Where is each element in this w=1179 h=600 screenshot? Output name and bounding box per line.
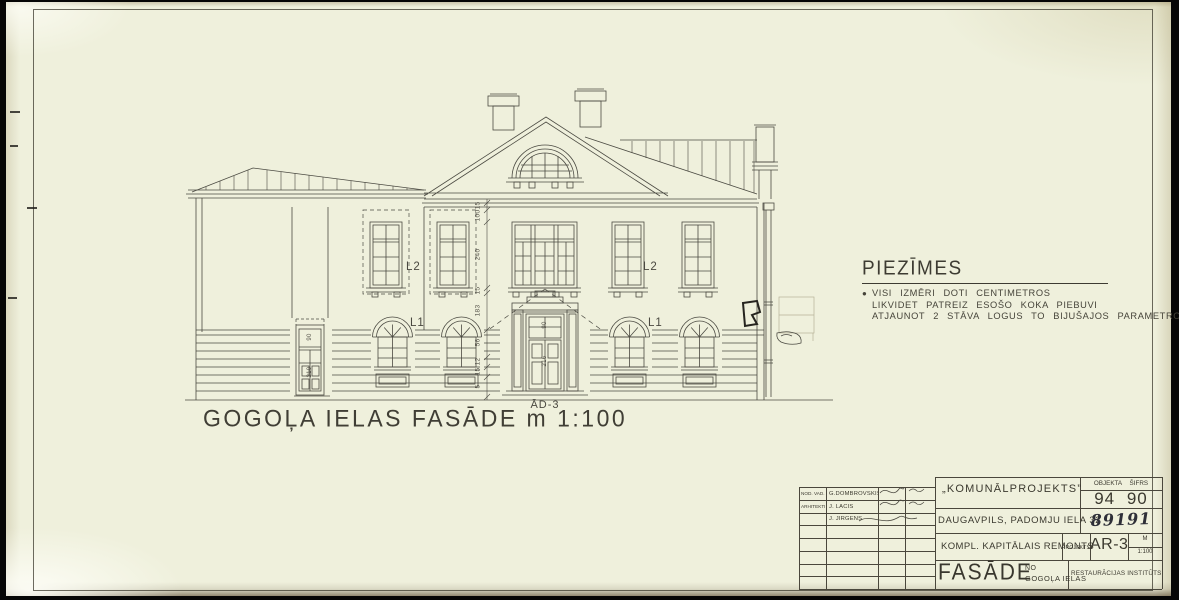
section-callout — [743, 301, 760, 326]
projekts-label: PROJEKTS — [1062, 545, 1090, 551]
scale-value: 1:100 — [1128, 549, 1162, 555]
blueprint-sheet: GOGOĻA IELAS FASĀDE m 1:100 L2 L2 L1 L1 … — [0, 0, 1179, 600]
door-dimension: 216 — [542, 352, 548, 370]
dimension-value: 183 — [475, 302, 482, 320]
institute-name: RESTAURĀCIJAS INSTITŪTS — [1071, 570, 1161, 577]
paper-edge-mark — [27, 207, 37, 209]
triple-window — [508, 222, 581, 297]
sheet-code: AR-3 — [1090, 536, 1128, 554]
notes-underline — [862, 283, 1108, 284]
notes-heading: PIEZĪMES — [862, 257, 1162, 280]
rear-roof-edge — [585, 137, 757, 194]
notes-panel: PIEZĪMES ●VISI IZMĒRI DOTI CENTIMETROS L… — [862, 258, 1162, 323]
dimension-value: 15 — [475, 282, 482, 300]
right-corner-chimney — [752, 125, 778, 199]
note-item: LIKVIDET PATREIZ ESOŠO KOKA PIEBUVI — [862, 300, 1162, 312]
window-type-label-l1-right: L1 — [648, 317, 663, 329]
drawing-name-prefix: NO — [1025, 565, 1037, 572]
left-wing-roof — [192, 168, 424, 192]
window-type-label-l2-right: L2 — [643, 261, 658, 273]
note-item: ATJAUNOT 2 STĀVA LOGUS TO BIJUŠAJOS PARA… — [862, 311, 1162, 323]
note-item: ●VISI IZMĒRI DOTI CENTIMETROS — [862, 288, 1162, 300]
drawing-title: GOGOĻA IELAS FASĀDE m 1:100 — [203, 404, 627, 432]
door-dimension: 90 — [542, 316, 548, 334]
organization-name: „KOMUNĀLPROJEKTS” — [942, 483, 1082, 495]
left-wing-cornice — [186, 190, 428, 198]
paper-edge-mark — [10, 145, 18, 147]
dimension-value: 100 — [475, 207, 482, 225]
door-dimension: 210 — [307, 363, 313, 381]
chimney-left — [488, 94, 519, 130]
dimension-chain — [484, 199, 490, 400]
project-address: DAUGAVPILS, PADOMJU IELA 32 — [938, 515, 1101, 526]
dimension-value: 56 — [475, 334, 482, 352]
lunette-window — [506, 145, 584, 188]
window-type-label-l2-left: L2 — [406, 261, 421, 273]
left-roof-seams — [206, 170, 407, 190]
door-dimension: 90 — [307, 328, 313, 346]
dimension-value: 5 — [475, 378, 482, 396]
console-bracket — [777, 332, 801, 345]
paper-edge-mark — [8, 297, 17, 299]
title-block: NOD. VAD. G.DOMBROVSKIS ARHITEKTI J. LĀC… — [799, 477, 1162, 589]
door-type-label: ĀD-3 — [527, 399, 563, 411]
scale-label: M — [1128, 536, 1162, 542]
rear-roof-seams — [632, 141, 754, 193]
object-code: 94 90 — [1080, 489, 1162, 509]
drawing-name: FASĀDE — [938, 560, 1033, 586]
chimney-right — [575, 89, 606, 127]
downspout — [763, 203, 774, 397]
bullet-dot-icon: ● — [862, 288, 872, 300]
main-cornice — [422, 199, 759, 207]
paper-edge-mark — [10, 111, 20, 113]
object-code-label: OBJEKTA ŠIFRS — [1080, 480, 1162, 487]
window-type-label-l1-left: L1 — [410, 317, 425, 329]
dimension-value: 240 — [475, 246, 482, 264]
building-elevation-drawing — [150, 80, 850, 420]
pediment — [424, 117, 668, 196]
order-number-handwritten: 89191 — [1080, 509, 1163, 531]
